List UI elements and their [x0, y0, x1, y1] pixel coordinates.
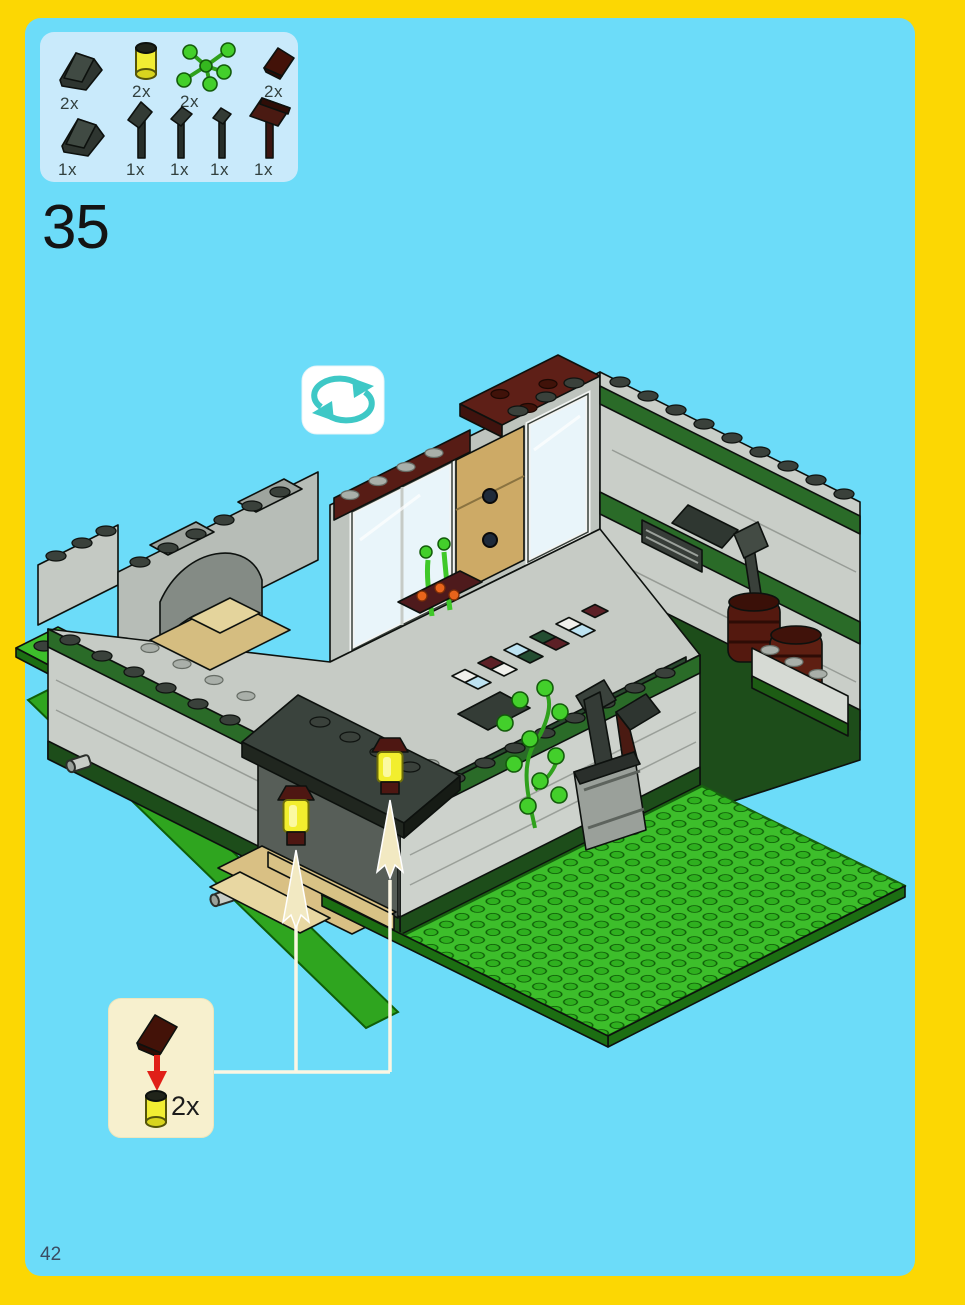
- green-plant-leaves-icon: [170, 38, 242, 92]
- cabinet-knob: [483, 489, 497, 503]
- trans-yellow-round-brick-icon: [128, 38, 164, 86]
- step-number: 35: [42, 192, 109, 263]
- callout-qty: 2x: [171, 1091, 200, 1122]
- dark-red-slope-brick-icon: [129, 1009, 185, 1059]
- spade-tool-icon: [168, 102, 196, 160]
- cabinet-knob: [483, 533, 497, 547]
- lamp-assembly-callout: 2x: [108, 998, 214, 1138]
- window-right: [528, 394, 588, 562]
- parts-callout-box: 2x 2x 2x 2x 1x: [40, 32, 298, 182]
- hammer-tool-icon: [208, 104, 236, 160]
- instruction-page: 2x 2x 2x 2x 1x: [0, 0, 965, 1305]
- dark-gray-slope-brick-icon: [54, 110, 112, 160]
- shovel-tool-icon: [124, 98, 158, 160]
- rotate-model-icon: [302, 366, 384, 434]
- dark-red-slope-brick-icon: [260, 44, 298, 80]
- part-qty: 1x: [254, 160, 273, 180]
- dark-gray-slope-brick-icon: [52, 44, 110, 94]
- trans-yellow-round-brick-icon: [137, 1085, 175, 1133]
- back-left-wall: [38, 525, 118, 625]
- sledgehammer-tool-icon: [248, 96, 294, 160]
- page-number: 42: [40, 1244, 61, 1266]
- part-qty: 1x: [170, 160, 189, 180]
- part-qty: 1x: [58, 160, 77, 180]
- part-qty: 1x: [210, 160, 229, 180]
- part-qty: 1x: [126, 160, 145, 180]
